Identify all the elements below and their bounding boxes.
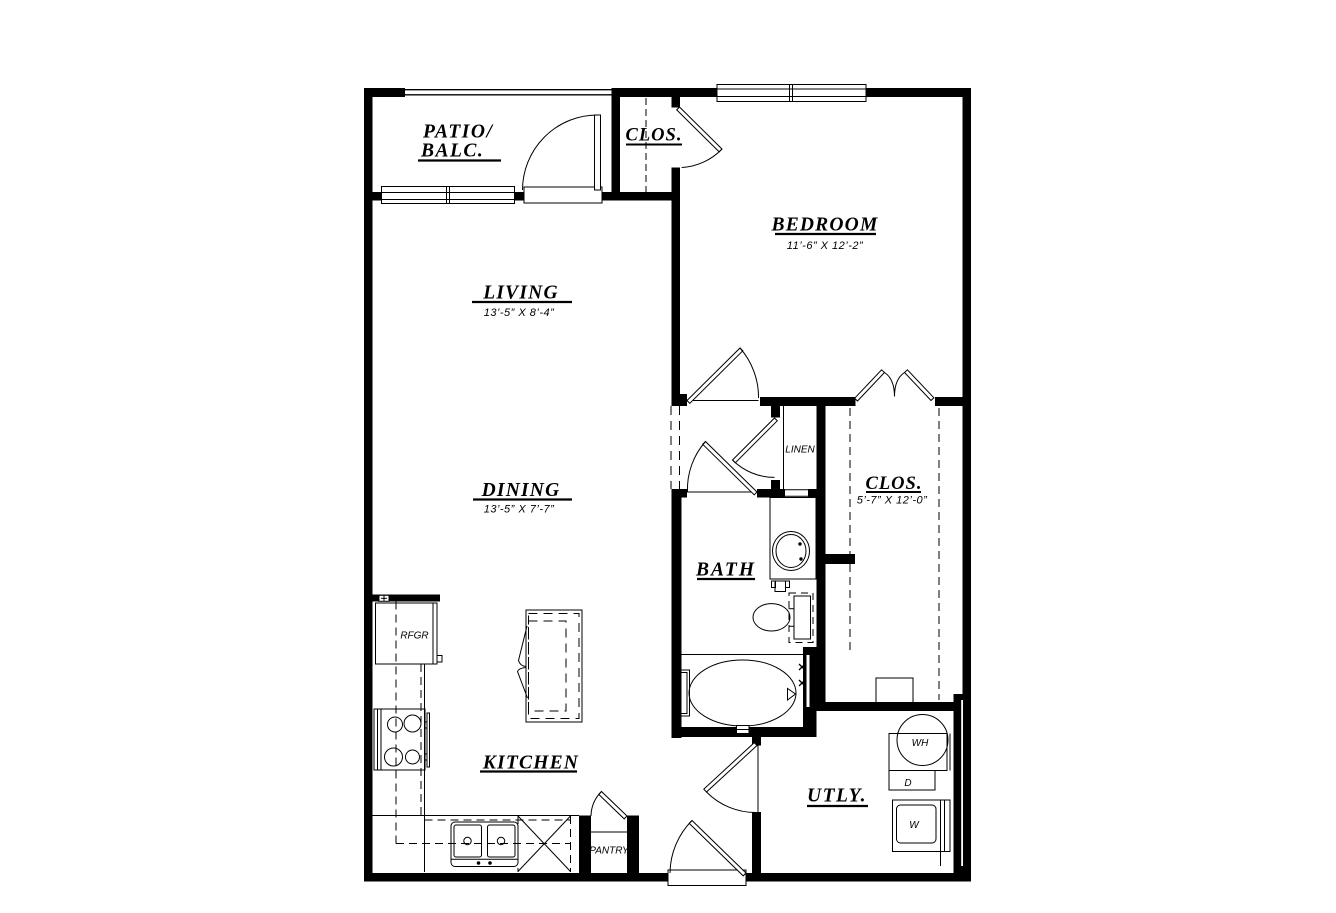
- svg-text:13’-5” X 8’-4”: 13’-5” X 8’-4”: [484, 307, 555, 319]
- svg-text:W: W: [909, 820, 920, 831]
- svg-text:BEDROOM: BEDROOM: [770, 215, 878, 236]
- svg-text:5’-7” X 12’-0”: 5’-7” X 12’-0”: [857, 495, 928, 507]
- svg-text:LIVING: LIVING: [482, 283, 558, 304]
- svg-text:13’-5” X 7’-7”: 13’-5” X 7’-7”: [484, 504, 555, 516]
- svg-text:D: D: [904, 778, 911, 789]
- svg-text:PANTRY: PANTRY: [589, 846, 630, 857]
- svg-text:BALC.: BALC.: [420, 141, 484, 162]
- svg-text:CLOS.: CLOS.: [626, 126, 683, 146]
- svg-text:UTLY.: UTLY.: [807, 786, 867, 807]
- svg-text:PATIO/: PATIO/: [422, 122, 493, 143]
- svg-text:WH: WH: [912, 738, 929, 749]
- svg-text:11’-6” X 12’-2”: 11’-6” X 12’-2”: [787, 240, 864, 252]
- svg-text:RFGR: RFGR: [400, 631, 428, 642]
- svg-text:KITCHEN: KITCHEN: [482, 753, 579, 774]
- svg-text:DINING: DINING: [481, 480, 561, 501]
- svg-text:BATH: BATH: [695, 560, 756, 581]
- svg-text:LINEN: LINEN: [785, 445, 815, 456]
